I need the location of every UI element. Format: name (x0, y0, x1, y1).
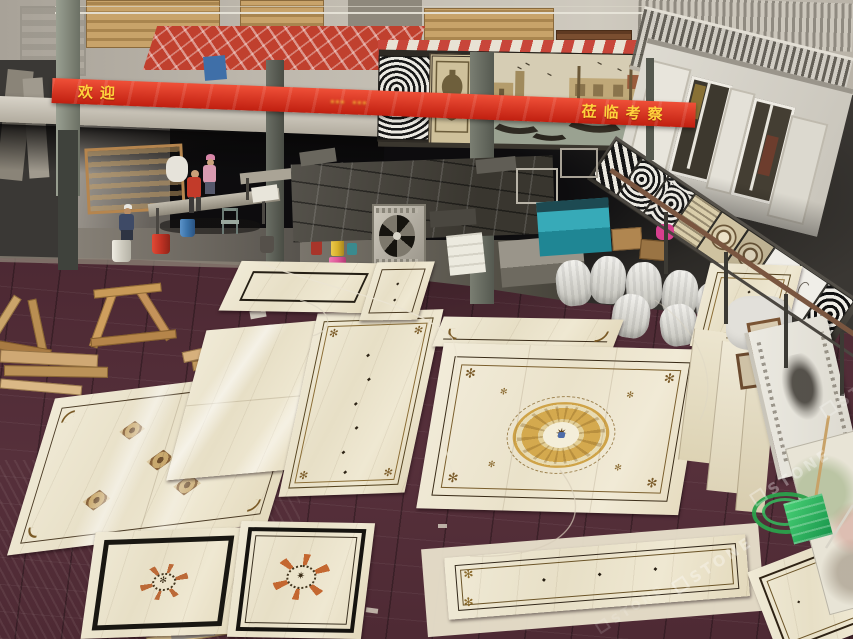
white-sack (166, 156, 188, 182)
worker-red-shirt (187, 177, 201, 198)
worker-legs (189, 197, 194, 213)
steel-column-shadowed (58, 130, 78, 270)
under-table-clutter (160, 218, 260, 234)
factory-showroom-photo: ⚠ 欢迎 ⋯⋯ 莅临考察 (0, 0, 853, 639)
table-leg (262, 198, 265, 224)
blue-barrel (180, 219, 195, 237)
worker-legs (205, 182, 215, 194)
steel-table-frame (560, 148, 598, 178)
banner-text-middle: ⋯⋯ (329, 92, 374, 112)
banner-text-start: 欢迎 (78, 81, 123, 104)
worker-legs (121, 230, 133, 240)
blue-box (203, 55, 227, 81)
worker-blue-shirt (119, 214, 134, 231)
fan-shutter (376, 208, 418, 213)
railing-top (55, 12, 645, 14)
chair-seat (221, 220, 239, 224)
table-leg (156, 208, 159, 234)
cardboard-box (611, 227, 642, 251)
fan-hub (393, 232, 401, 240)
teal-machine (536, 198, 612, 257)
table-leg (246, 178, 249, 200)
worker-legs (196, 197, 201, 211)
loose-tile (429, 208, 476, 227)
banner-text-end: 莅临考察 (581, 100, 670, 124)
worker-pink-shirt (203, 165, 216, 183)
floor-wires (0, 250, 853, 639)
steel-table-frame (516, 168, 558, 204)
railing-top (55, 6, 645, 7)
